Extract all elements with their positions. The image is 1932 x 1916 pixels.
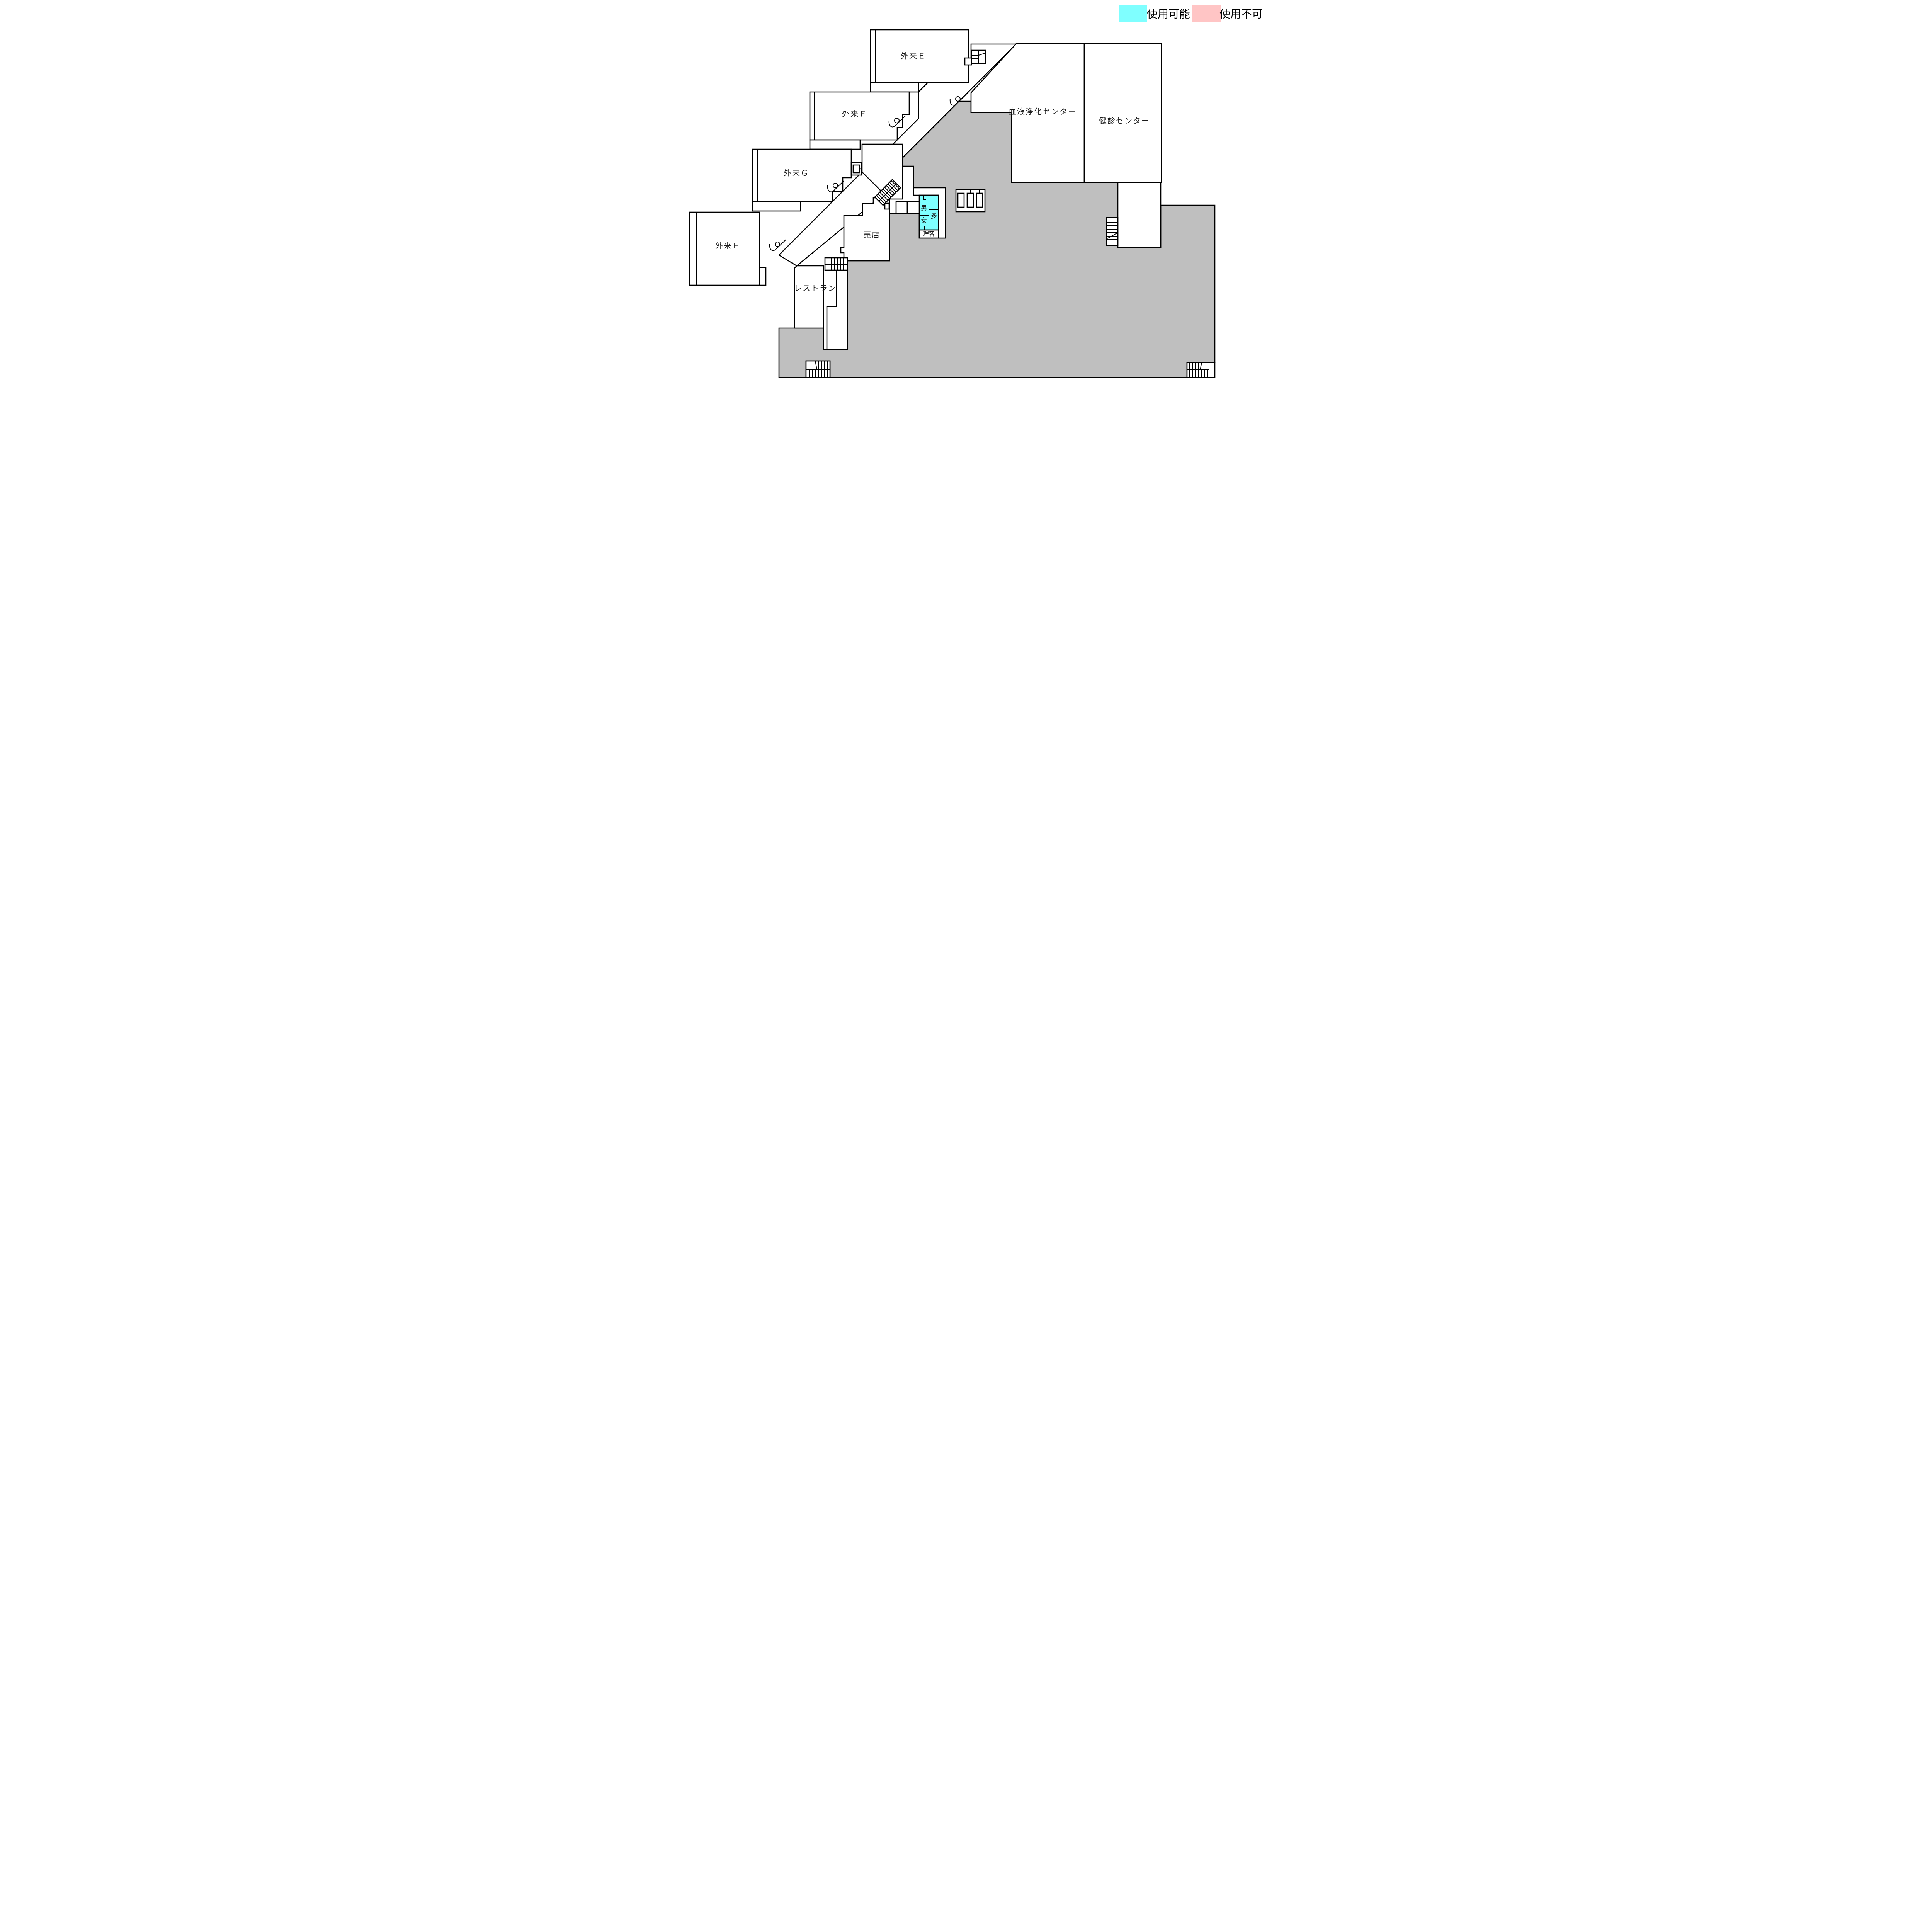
legend-available-label: 使用可能 [1147, 8, 1190, 20]
room-checkup-center [1084, 44, 1162, 182]
restaurant-label: レストラン [794, 284, 837, 293]
stairs-icon-bottom-left [806, 361, 830, 378]
utility-room-right [907, 202, 919, 213]
utility-room-left [896, 202, 907, 213]
room-restaurant [794, 266, 823, 328]
wing-outpatient-e: 外来Ｅ [871, 30, 968, 92]
toilet-block: 男 女 多 理容 [919, 195, 939, 238]
stairs-icon-east [1107, 218, 1118, 245]
wing-outpatient-h: 外来Ｈ [689, 212, 766, 285]
outpatient-h-label: 外来Ｈ [715, 241, 741, 250]
legend: 使用可能 使用不可 [1119, 5, 1263, 22]
toilet-multi-label: 多 [931, 212, 937, 220]
checkup-center-label: 健診センター [1099, 116, 1150, 125]
outpatient-e-label: 外来Ｅ [901, 51, 926, 60]
restaurant-corridor [827, 270, 847, 349]
shop-label: 売店 [863, 230, 880, 239]
checkup-lower-annex [1118, 182, 1161, 248]
floor-map-page: 外来Ｅ 外来Ｆ 外来Ｇ 外来Ｈ 血液浄化センター 健診センター 売店 レストラン [663, 0, 1269, 429]
legend-unavailable-label: 使用不可 [1219, 8, 1263, 20]
outpatient-g-label: 外来Ｇ [784, 168, 809, 177]
stairs-icon-restaurant [825, 258, 847, 270]
blood-purification-center-label: 血液浄化センター [1009, 107, 1077, 116]
legend-available-swatch [1119, 5, 1147, 22]
toilet-female-label: 女 [921, 217, 927, 224]
pillar [885, 203, 889, 209]
legend-unavailable-swatch [1192, 5, 1221, 22]
outpatient-f-label: 外来Ｆ [842, 109, 867, 118]
stairs-icon-bottom-right [1187, 362, 1215, 378]
floor-map: 外来Ｅ 外来Ｆ 外来Ｇ 外来Ｈ 血液浄化センター 健診センター 売店 レストラン [663, 0, 1269, 429]
phone-booth-row [956, 189, 985, 212]
barber-label: 理容 [923, 231, 935, 237]
toilet-male-label: 男 [921, 204, 927, 212]
elevator-icon [851, 162, 861, 175]
escalator-icon-h [770, 240, 786, 250]
